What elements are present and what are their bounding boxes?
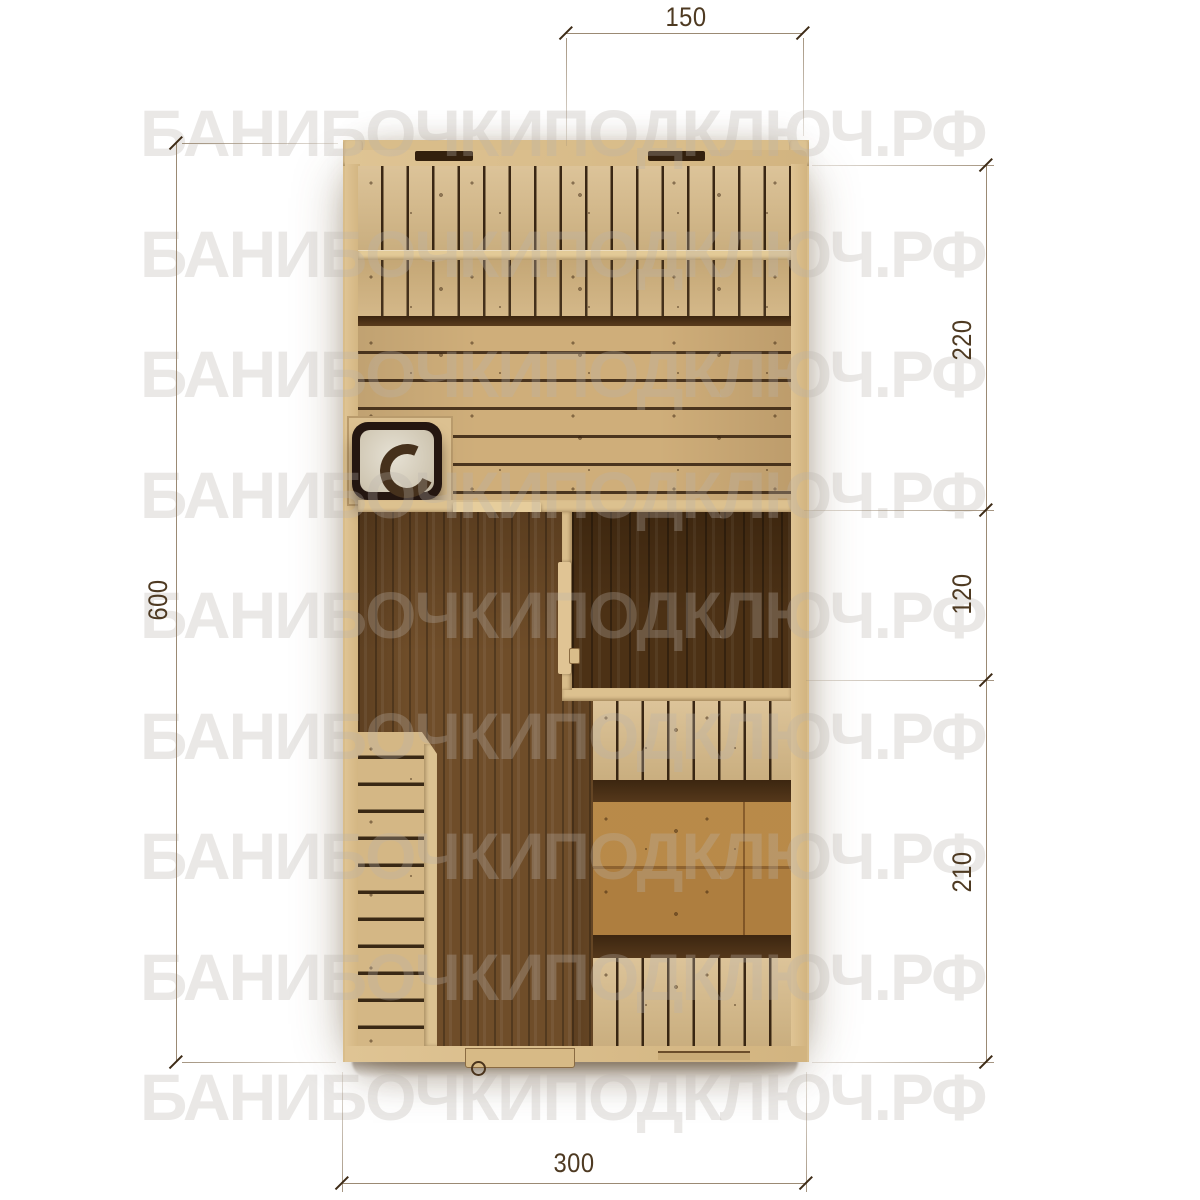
partition-wall-lower: [562, 688, 791, 701]
bench-left: [358, 732, 437, 1046]
steam-bench-rail: [358, 250, 791, 260]
stove: [352, 422, 442, 500]
bench-left-rail: [424, 744, 437, 1046]
extension-line: [804, 510, 994, 511]
steam-bench-lower-tier: [358, 260, 791, 316]
floor-plan: [343, 140, 809, 1062]
roof-vent-right: [648, 151, 705, 161]
extension-line: [812, 1062, 994, 1063]
shadow-strip-upper: [593, 780, 791, 802]
drawing-canvas: БАНИБОЧКИПОДКЛЮЧ.РФ БАНИБОЧКИПОДКЛЮЧ.РФ …: [0, 0, 1200, 1200]
extension-line: [806, 1072, 807, 1192]
plan-drop-shadow: [352, 1061, 798, 1078]
dimension-label-right-middle: 120: [947, 554, 977, 633]
dimension-line-bottom: [342, 1183, 806, 1184]
table-right: [593, 802, 791, 935]
dimension-label-bottom: 300: [534, 1148, 613, 1178]
wall-right: [791, 164, 807, 1048]
bench-right-upper: [593, 701, 791, 780]
shadow-strip-lower: [593, 935, 791, 958]
extension-line: [342, 1072, 343, 1192]
extension-line: [803, 38, 804, 136]
bench-right-lower: [593, 958, 791, 1046]
dimension-label-right-upper: 220: [947, 300, 977, 379]
dimension-line-left: [176, 143, 177, 1062]
extension-line: [812, 165, 994, 166]
stove-top-surface: [360, 430, 434, 492]
roof-vent-left: [415, 151, 473, 161]
extension-line: [566, 38, 567, 146]
dimension-label-right-lower: 210: [947, 832, 977, 911]
stove-burner-swirl-icon: [372, 436, 441, 505]
extension-line: [182, 1062, 336, 1063]
steam-bench-upper-tier: [358, 166, 791, 250]
washroom-door-handle: [569, 648, 580, 664]
steam-bench-front-shadow: [358, 316, 791, 326]
dimension-line-top: [566, 33, 803, 34]
dimension-label-top: 150: [646, 2, 725, 32]
extension-line: [806, 680, 994, 681]
extension-line: [182, 143, 338, 144]
entrance-door-hook: [471, 1061, 486, 1076]
dimension-label-left: 600: [143, 560, 173, 639]
rest-room-floor: [572, 512, 791, 688]
threshold-strip: [658, 1051, 750, 1060]
dimension-line-right: [986, 165, 987, 1062]
